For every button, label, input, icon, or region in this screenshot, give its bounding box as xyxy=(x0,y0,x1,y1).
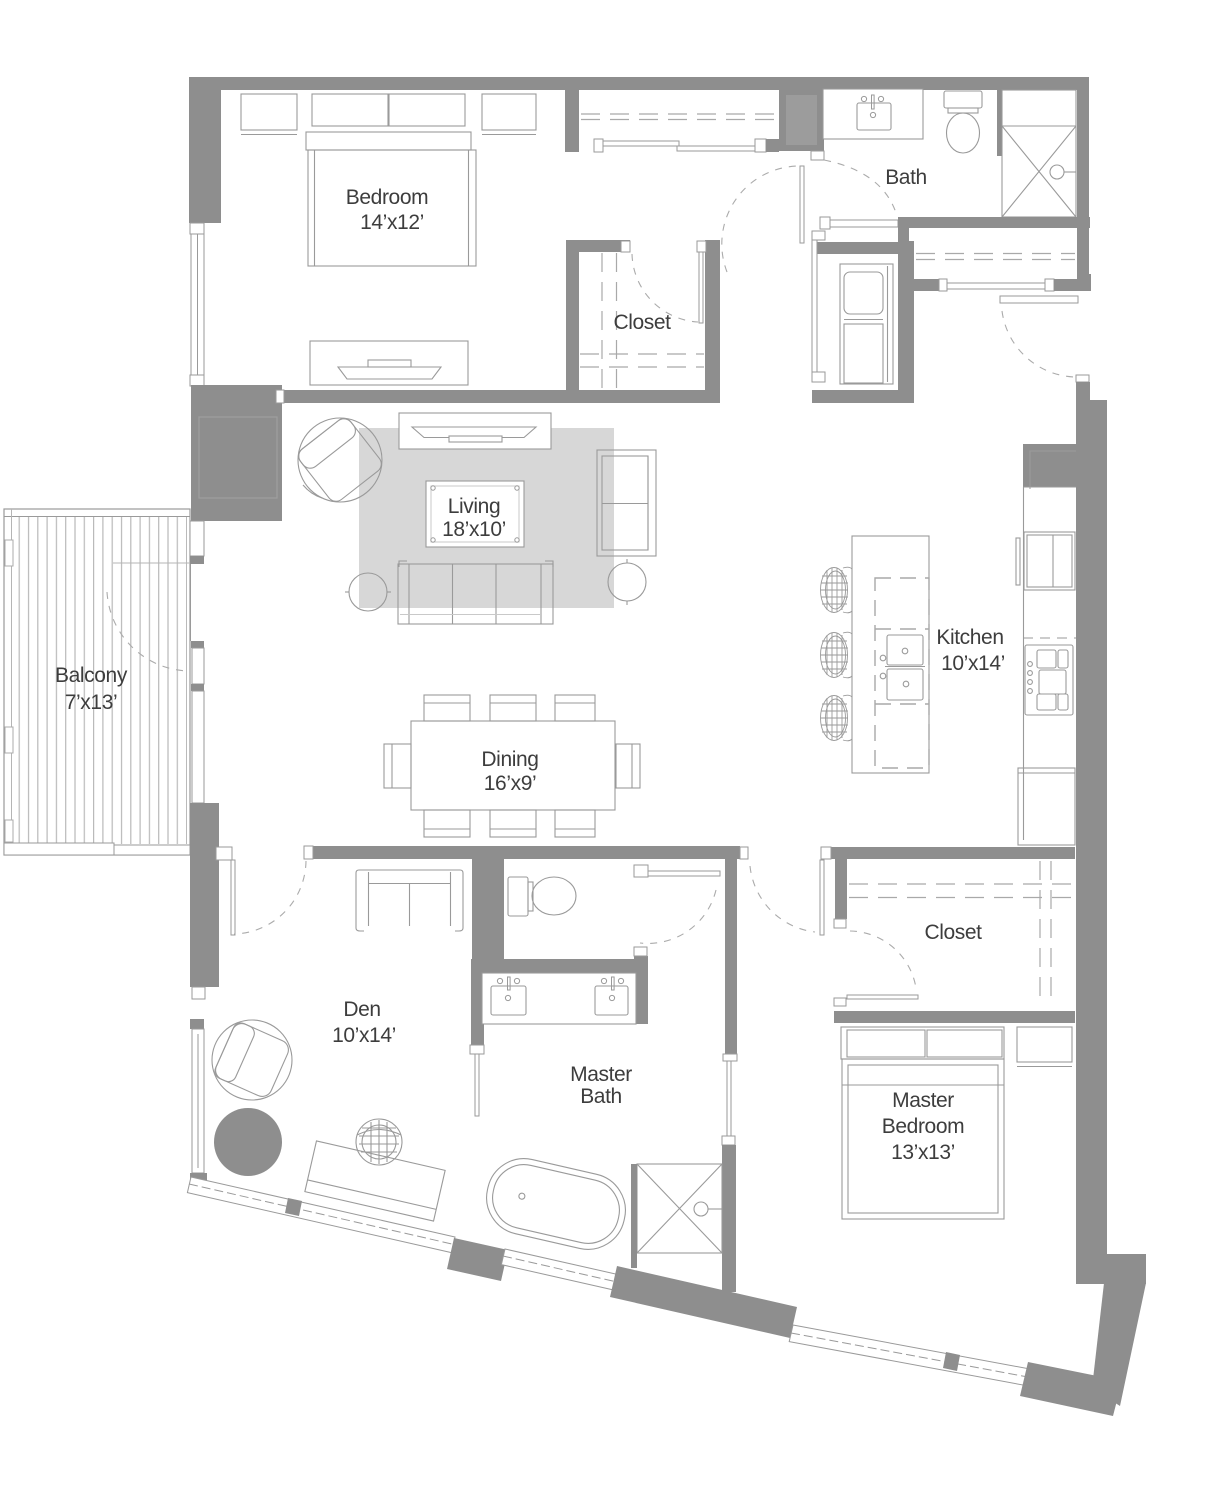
svg-text:Master: Master xyxy=(892,1089,954,1112)
svg-text:Master: Master xyxy=(570,1063,632,1086)
svg-text:10’x14’: 10’x14’ xyxy=(332,1024,396,1047)
svg-text:Closet: Closet xyxy=(613,311,671,334)
svg-text:Closet: Closet xyxy=(924,921,982,944)
svg-text:Living: Living xyxy=(448,495,500,518)
svg-text:Bath: Bath xyxy=(885,166,927,189)
svg-text:16’x9’: 16’x9’ xyxy=(484,772,536,795)
svg-text:Den: Den xyxy=(343,998,380,1021)
svg-text:Balcony: Balcony xyxy=(55,664,128,687)
svg-text:13’x13’: 13’x13’ xyxy=(891,1141,955,1164)
svg-text:18’x10’: 18’x10’ xyxy=(442,518,506,541)
svg-text:Bath: Bath xyxy=(580,1085,622,1108)
svg-text:7’x13’: 7’x13’ xyxy=(65,691,117,714)
svg-text:Bedroom: Bedroom xyxy=(346,186,428,209)
svg-text:Dining: Dining xyxy=(481,748,538,771)
svg-text:10’x14’: 10’x14’ xyxy=(941,652,1005,675)
svg-text:14’x12’: 14’x12’ xyxy=(360,211,424,234)
svg-text:Bedroom: Bedroom xyxy=(882,1115,964,1138)
svg-text:Kitchen: Kitchen xyxy=(936,626,1003,649)
